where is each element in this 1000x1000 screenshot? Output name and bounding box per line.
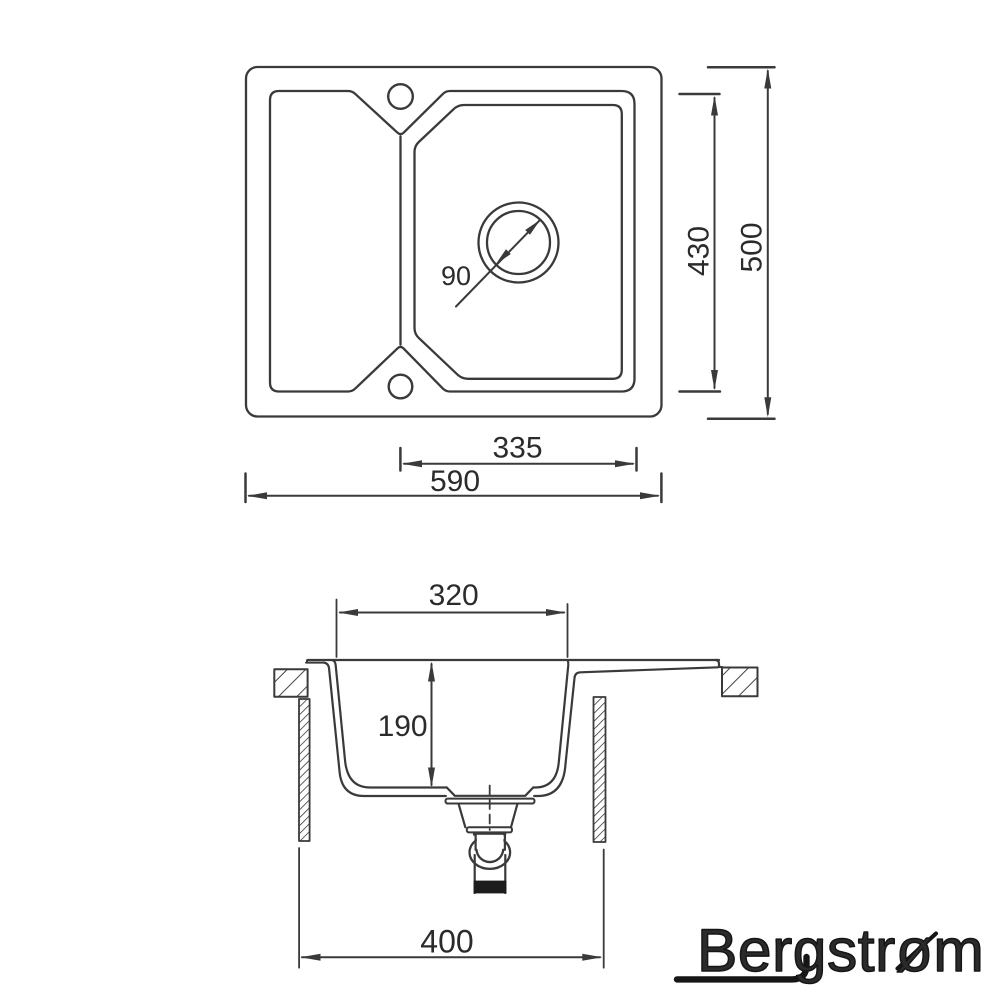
svg-text:190: 190 <box>378 710 428 743</box>
svg-text:400: 400 <box>420 924 473 960</box>
svg-text:335: 335 <box>492 432 542 465</box>
svg-text:500: 500 <box>736 222 769 272</box>
svg-text:430: 430 <box>683 226 716 276</box>
svg-text:Bergstrøm: Bergstrøm <box>697 916 984 984</box>
svg-text:320: 320 <box>429 579 479 612</box>
svg-text:590: 590 <box>430 465 480 498</box>
svg-text:90: 90 <box>441 261 471 291</box>
